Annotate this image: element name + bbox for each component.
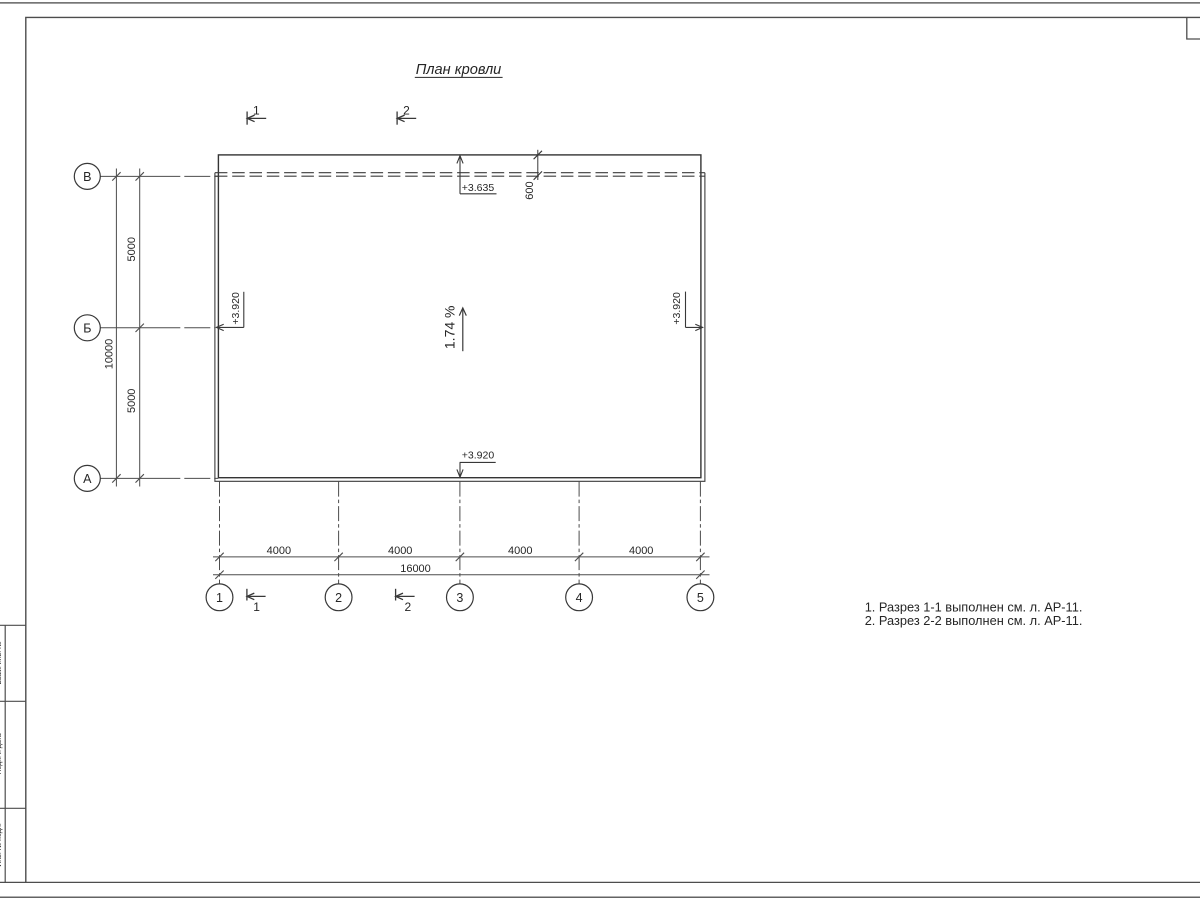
svg-text:Взам. инв. №: Взам. инв. № xyxy=(0,641,3,684)
svg-text:+3.920: +3.920 xyxy=(462,449,495,461)
svg-text:10000: 10000 xyxy=(104,339,116,370)
svg-text:1: 1 xyxy=(216,591,223,605)
svg-text:1. Разрез 1-1 выполнен см. л.: 1. Разрез 1-1 выполнен см. л. АР-11. xyxy=(865,599,1083,614)
svg-text:16000: 16000 xyxy=(400,563,431,575)
svg-text:2. Разрез 2-2 выполнен см. л.: 2. Разрез 2-2 выполнен см. л. АР-11. xyxy=(865,613,1083,628)
svg-text:А: А xyxy=(83,472,92,486)
svg-text:4: 4 xyxy=(576,591,583,605)
svg-text:4000: 4000 xyxy=(388,545,412,557)
svg-text:План кровли: План кровли xyxy=(416,62,502,78)
svg-text:3: 3 xyxy=(456,591,463,605)
svg-text:2: 2 xyxy=(404,600,411,614)
svg-text:4000: 4000 xyxy=(267,545,291,557)
svg-text:2: 2 xyxy=(403,103,410,117)
svg-text:2: 2 xyxy=(335,591,342,605)
svg-text:600: 600 xyxy=(524,181,536,199)
svg-text:+3.920: +3.920 xyxy=(230,292,242,325)
svg-text:Подп. и дата: Подп. и дата xyxy=(0,733,3,774)
svg-text:+3.635: +3.635 xyxy=(462,182,495,194)
svg-text:+3.920: +3.920 xyxy=(671,292,683,325)
svg-text:5000: 5000 xyxy=(126,237,138,261)
svg-text:4000: 4000 xyxy=(629,545,653,557)
svg-text:4000: 4000 xyxy=(508,545,532,557)
svg-text:1: 1 xyxy=(253,103,260,117)
svg-text:1.74 %: 1.74 % xyxy=(442,306,458,350)
svg-text:5000: 5000 xyxy=(126,389,138,413)
svg-text:Инв. № подл.: Инв. № подл. xyxy=(0,823,3,867)
svg-text:1: 1 xyxy=(253,600,260,614)
svg-text:5: 5 xyxy=(697,591,704,605)
svg-text:В: В xyxy=(83,170,91,184)
svg-text:Б: Б xyxy=(83,321,91,335)
